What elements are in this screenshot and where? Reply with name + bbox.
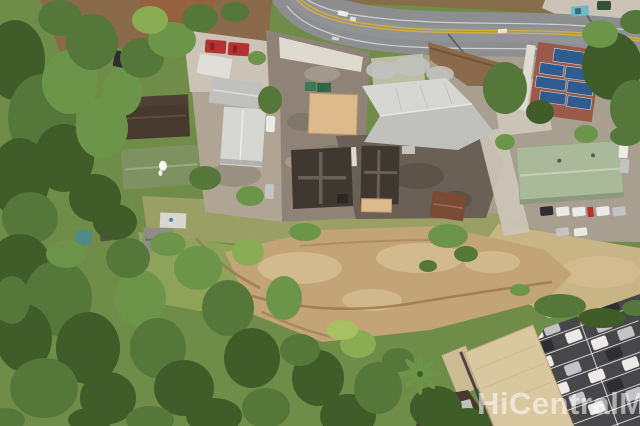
palm-tree bbox=[399, 353, 441, 395]
green-warehouse-building bbox=[516, 140, 624, 204]
green-roof-house bbox=[121, 144, 201, 189]
aerial-scene: HiCentralMLS bbox=[0, 0, 640, 426]
watermark-text: HiCentralMLS bbox=[477, 386, 640, 421]
brown-shed bbox=[429, 191, 466, 221]
tan-flat-roof-building bbox=[308, 93, 357, 135]
neighbor-house-east bbox=[360, 146, 399, 213]
aerial-listing-photo: HiCentralMLS bbox=[0, 0, 640, 426]
